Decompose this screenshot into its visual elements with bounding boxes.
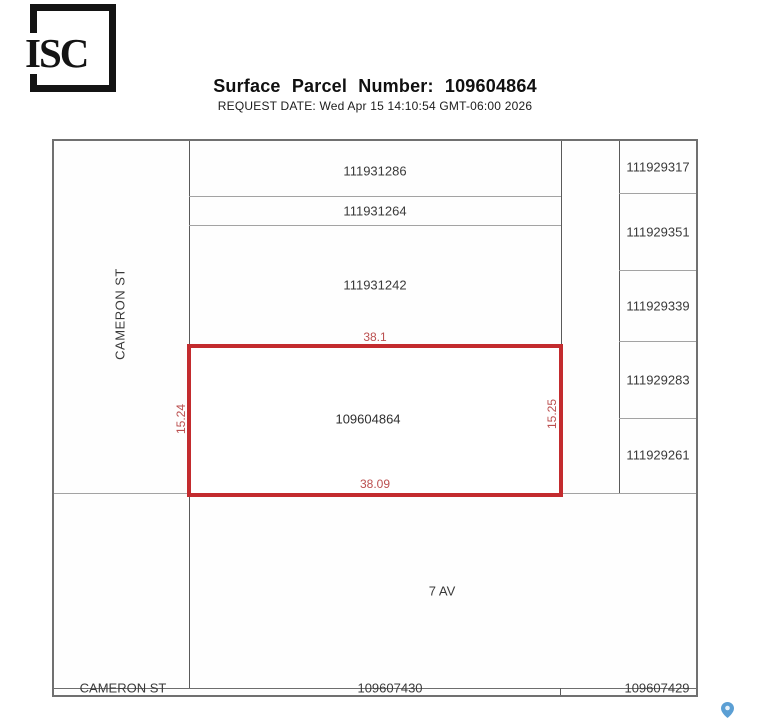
map-pin-icon [721,702,734,718]
parcel-map: 111931286 111931264 111931242 111929317 … [52,139,698,697]
boundary-line-vertical-west-lower [189,493,190,688]
neighbor-parcel-label: 111929317 [626,160,689,175]
neighbor-parcel-label: 111931242 [343,278,406,293]
boundary-line-east-divider-3 [619,341,696,342]
neighbor-parcel-label: 111929351 [626,225,689,240]
boundary-line-north-divider-1 [189,196,561,197]
neighbor-parcel-label: 109607429 [624,681,689,696]
dimension-label-right: 15.25 [545,399,559,429]
subject-parcel-label: 109604864 [335,412,400,427]
neighbor-parcel-label: 111929339 [626,299,689,314]
boundary-line-east-divider-1 [619,193,696,194]
boundary-line-bottom-tick [560,688,561,695]
page-title: Surface Parcel Number: 109604864 [52,76,698,97]
dimension-label-top: 38.1 [363,330,386,344]
boundary-line-east-divider-4 [619,418,696,419]
boundary-line-vertical-west [189,141,190,344]
neighbor-parcel-label: 111929261 [626,448,689,463]
boundary-line-north-divider-2 [189,225,561,226]
street-label-cameron-vertical: CAMERON ST [113,268,128,360]
isc-logo-text: ISC [22,33,90,74]
boundary-line-vertical-central-east [561,141,562,344]
street-label-7av: 7 AV [429,584,456,599]
dimension-label-bottom: 38.09 [360,477,390,491]
street-label-cameron-bottom: CAMERON ST [80,681,167,696]
neighbor-parcel-label: 111931264 [343,204,406,219]
neighbor-parcel-label: 111929283 [626,373,689,388]
request-date: REQUEST DATE: Wed Apr 15 14:10:54 GMT-06… [52,99,698,113]
neighbor-parcel-label: 111931286 [343,164,406,179]
boundary-line-east-divider-2 [619,270,696,271]
neighbor-parcel-label: 109607430 [357,681,422,696]
dimension-label-left: 15.24 [174,404,188,434]
